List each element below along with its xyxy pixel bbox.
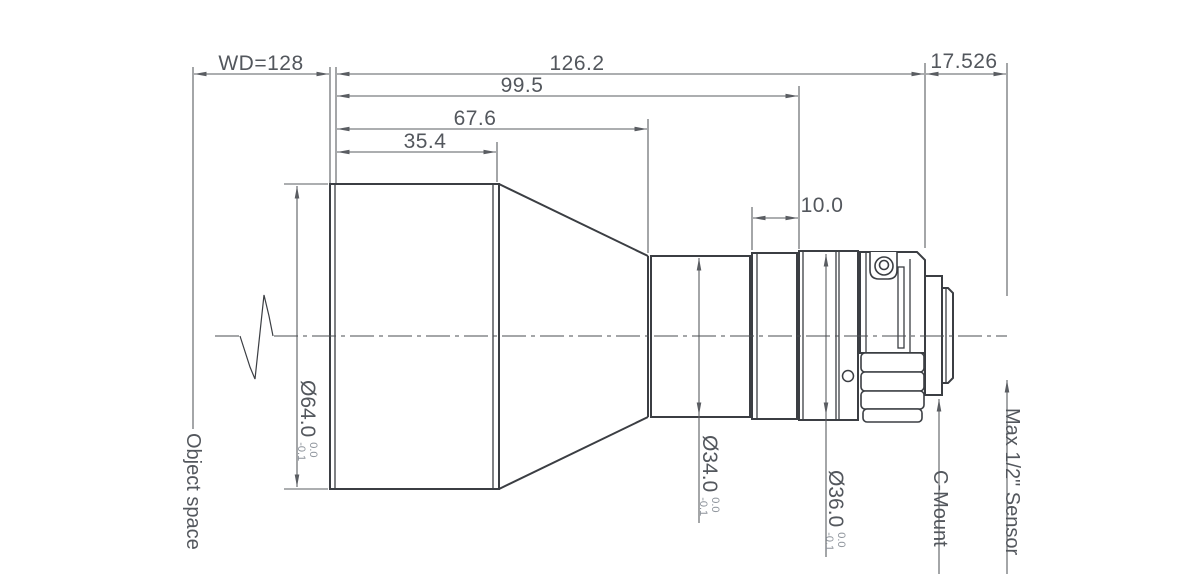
clamp-screw (870, 252, 897, 279)
diameter-mid-value: Ø34.0 (698, 435, 720, 492)
tolerance-lower: -0.1 (823, 532, 835, 551)
diameter-front-tolerance: 0.0 -0.1 (295, 442, 319, 461)
dim-label-length-front-barrel: 35.4 (404, 131, 447, 153)
c-mount-label: C-Mount (929, 470, 951, 547)
knurl-band (861, 372, 924, 391)
diameter-rear-value: Ø36.0 (824, 470, 846, 527)
dim-label-overall-length: 126.2 (549, 53, 604, 75)
set-screw-icon (843, 371, 854, 382)
tolerance-upper: 0.0 (307, 442, 319, 461)
dim-label-diameter-mid: Ø34.0 0.0 -0.1 (697, 435, 721, 516)
object-space-label: Object space (182, 433, 204, 550)
tolerance-lower: -0.1 (295, 442, 307, 461)
diameter-rear-tolerance: 0.0 -0.1 (823, 532, 847, 551)
knurl-bands (861, 353, 924, 422)
knurl-band (861, 353, 924, 372)
dim-label-focus-section: 10.0 (801, 195, 844, 217)
knurl-band (863, 409, 922, 422)
knurl-band (861, 391, 924, 409)
dim-label-length-mid: 99.5 (501, 75, 544, 97)
dim-label-diameter-front: Ø64.0 0.0 -0.1 (295, 380, 319, 461)
dim-label-length-front-group: 67.6 (454, 108, 497, 130)
dim-label-diameter-rear: Ø36.0 0.0 -0.1 (823, 470, 847, 551)
sensor-label: Max 1/2" Sensor (1001, 408, 1023, 555)
dim-label-flange-distance: 17.526 (930, 51, 997, 73)
lens-technical-drawing: WD=128 126.2 17.526 99.5 67.6 35.4 10.0 … (0, 0, 1200, 580)
tolerance-upper: 0.0 (835, 532, 847, 551)
tolerance-lower: -0.1 (697, 497, 709, 516)
break-symbol (240, 295, 273, 379)
diameter-front-value: Ø64.0 (296, 380, 318, 437)
tolerance-upper: 0.0 (709, 497, 721, 516)
diameter-mid-tolerance: 0.0 -0.1 (697, 497, 721, 516)
dim-label-working-distance: WD=128 (218, 53, 303, 75)
